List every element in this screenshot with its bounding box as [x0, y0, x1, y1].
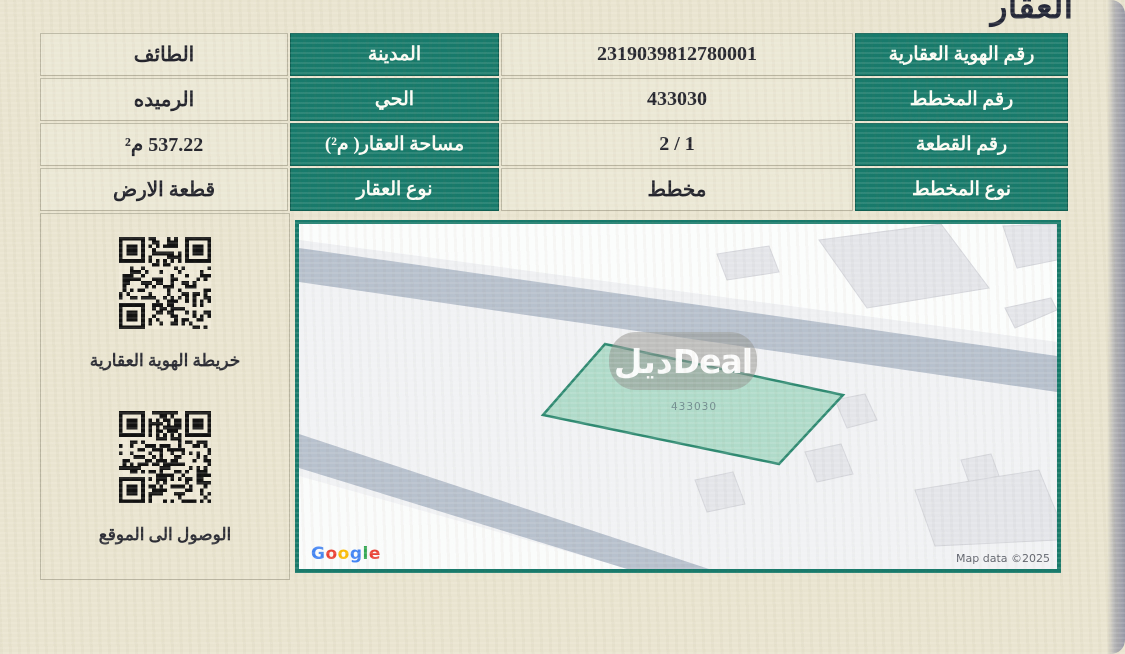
property-table: الطائفالمدينة2319039812780001رقم الهوية … [40, 33, 1062, 211]
record-value-r0: 2319039812780001 [501, 33, 853, 76]
record-value-r2: 2 / 1 [501, 123, 853, 166]
field-label-r1: رقم المخطط [855, 78, 1068, 121]
map-canvas[interactable]: 433030 ديلDeal Google Map data ©2025 [295, 220, 1061, 573]
google-logo[interactable]: Google [311, 544, 381, 564]
google-logo-letter: o [338, 544, 350, 564]
map-art: 433030 [299, 224, 1057, 569]
field-label-r3: نوع العقار [290, 168, 499, 211]
field-label-r1: الحي [290, 78, 499, 121]
google-logo-letter: g [350, 544, 363, 564]
city-value-r3: قطعة الارض [40, 168, 288, 211]
field-label-r0: رقم الهوية العقارية [855, 33, 1068, 76]
field-label-r0: المدينة [290, 33, 499, 76]
city-value-r0: الطائف [40, 33, 288, 76]
google-logo-letter: G [311, 544, 325, 564]
map-attribution: Map data ©2025 [956, 552, 1050, 565]
field-label-r2: مساحة العقار( م²) [290, 123, 499, 166]
record-value-r3: مخطط [501, 168, 853, 211]
qr-panel: خريطة الهوية العقارية الوصول الى الموقع [40, 213, 290, 580]
property-map-qr-label: خريطة الهوية العقارية [90, 351, 241, 371]
deal-watermark: ديلDeal [609, 332, 757, 390]
page-title: العقار [972, 0, 1092, 27]
field-label-r2: رقم القطعة [855, 123, 1068, 166]
record-value-r1: 433030 [501, 78, 853, 121]
property-map-qr-icon [119, 237, 211, 329]
plot-number-label: 433030 [671, 401, 717, 413]
location-qr-label: الوصول الى الموقع [99, 525, 232, 545]
city-value-r1: الرميده [40, 78, 288, 121]
field-label-r3: نوع المخطط [855, 168, 1068, 211]
google-logo-letter: o [325, 544, 337, 564]
city-value-r2: 537.22 م² [40, 123, 288, 166]
deal-watermark-text: ديلDeal [614, 342, 752, 381]
location-qr-icon [119, 411, 211, 503]
photo-edge-shadow [1107, 0, 1125, 654]
google-logo-letter: e [369, 544, 381, 564]
